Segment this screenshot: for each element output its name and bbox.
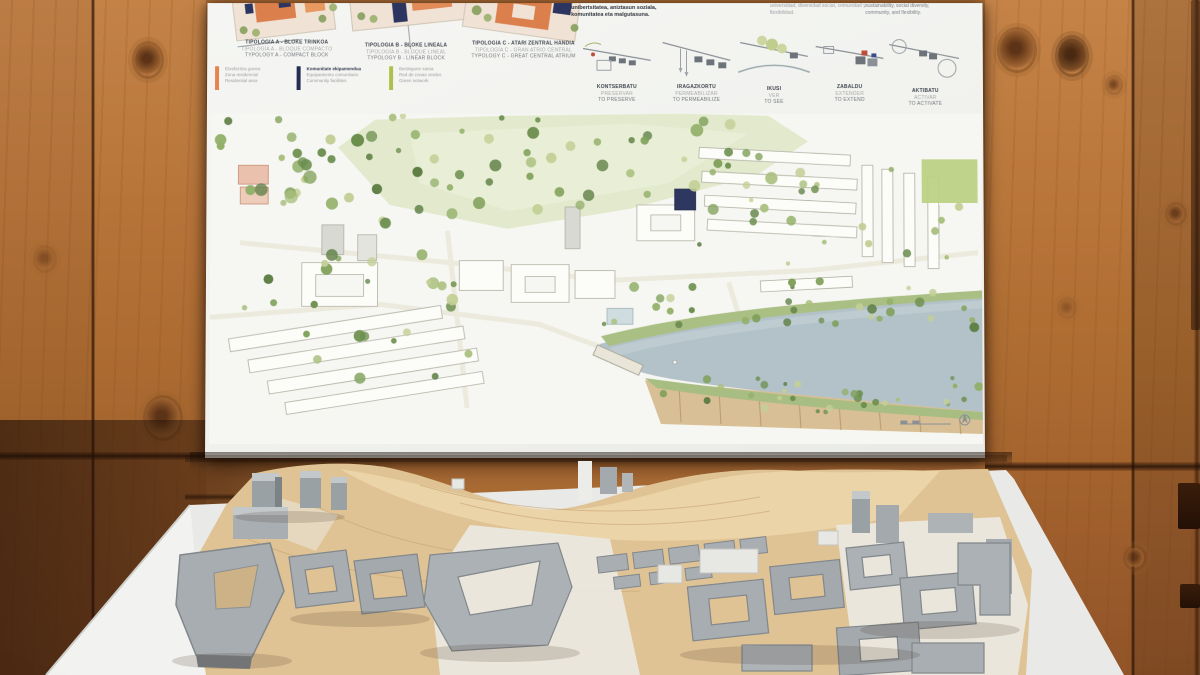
strategy-activate: AKTIBATUACTIVARTO ACTIVATE	[885, 37, 965, 108]
strategy-extend: ZABALDUEXTENDERTO EXTEND	[810, 35, 890, 104]
legend-color-green	[389, 66, 393, 90]
wood-knot	[1000, 30, 1034, 70]
legend-color-orange	[215, 66, 219, 90]
legend-color-navy	[297, 66, 301, 90]
model-white-slab	[700, 549, 758, 573]
green-patch	[922, 159, 978, 203]
strategy-see-diagram	[734, 33, 814, 86]
strategy-extend-diagram	[812, 35, 888, 84]
strategy-preserve-diagram	[579, 35, 655, 84]
wood-knot	[1058, 38, 1086, 74]
wood-knot	[1060, 300, 1074, 316]
strategy-see: IKUSIVERTO SEE	[734, 33, 814, 106]
wall-slot	[1191, 0, 1200, 330]
boat	[673, 360, 677, 364]
wood-knot	[135, 44, 161, 76]
typology-b-caption: TIPOLOGIA B - BLOKE LINEALA TIPOLOGÍA B …	[344, 43, 467, 62]
intro-text-basque: unibertsitatea, aniztasun soziala,komuni…	[571, 5, 720, 19]
typology-c-caption: TIPOLOGIA C - ATARI ZENTRAL HANDIA TIPOL…	[458, 41, 589, 60]
legend-item-green: Berdegune sareaRed de zonas verdesGreen …	[389, 66, 441, 90]
wood-knot	[36, 248, 54, 270]
site-model	[0, 455, 1200, 675]
strategy-permeabilize-diagram	[659, 33, 735, 84]
strategy-activate-diagram	[885, 37, 965, 88]
legend-item-community: Komunitate ekipamenduaEquipamiento comun…	[297, 66, 362, 90]
masterplan-drawing	[209, 114, 983, 444]
strategy-permeabilize: IRAGAZKORTUPERMEABILIZARTO PERMEABILIZE	[657, 33, 737, 104]
wood-knot	[1108, 78, 1120, 92]
exhibition-photo: TIPOLOGIA A - BLOKE TRINKOA TIPOLOGÍA A …	[0, 0, 1200, 675]
wood-knot	[1168, 205, 1184, 223]
intro-text-english: sustainability, social diversity,communi…	[865, 3, 982, 17]
legend-item-residential: Etxebizitza guneaZona residencialResiden…	[215, 66, 260, 90]
typology-a-caption: TIPOLOGIA A - BLOKE TRINKOA TIPOLOGÍA A …	[225, 40, 348, 59]
masterplan-poster: TIPOLOGIA A - BLOKE TRINKOA TIPOLOGÍA A …	[205, 3, 985, 458]
strategy-preserve: KONTSERBATUPRESERVARTO PRESERVE	[577, 35, 657, 104]
